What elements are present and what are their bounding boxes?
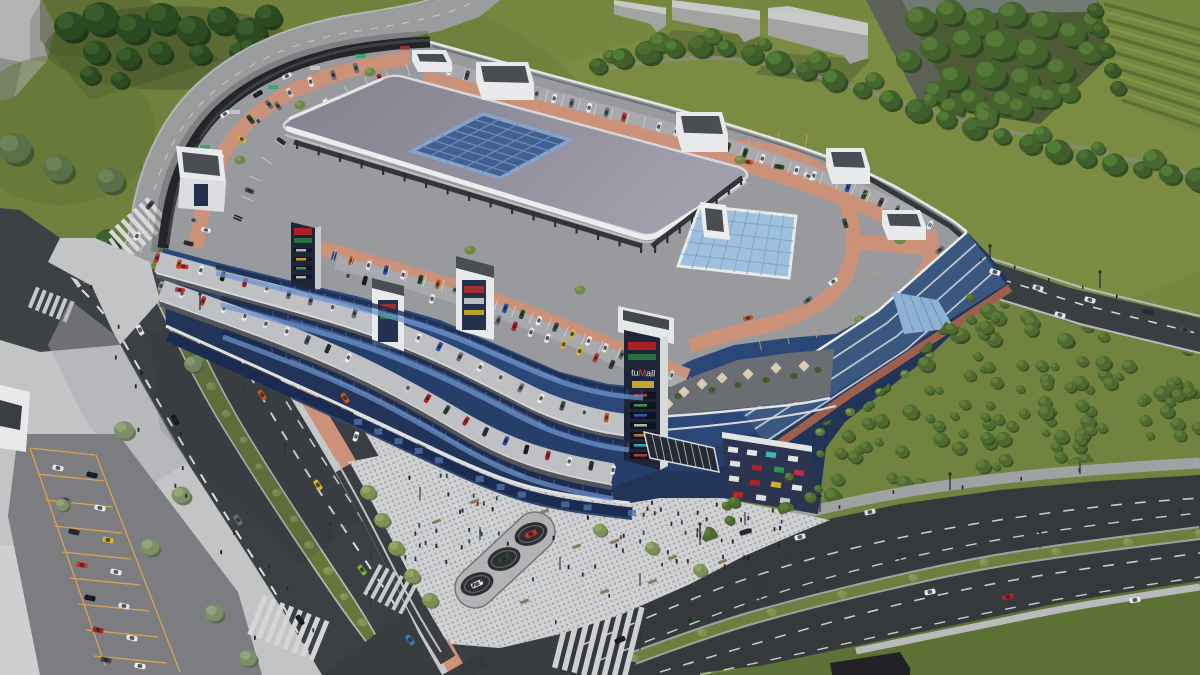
svg-text:tuMall: tuMall [631,367,656,378]
